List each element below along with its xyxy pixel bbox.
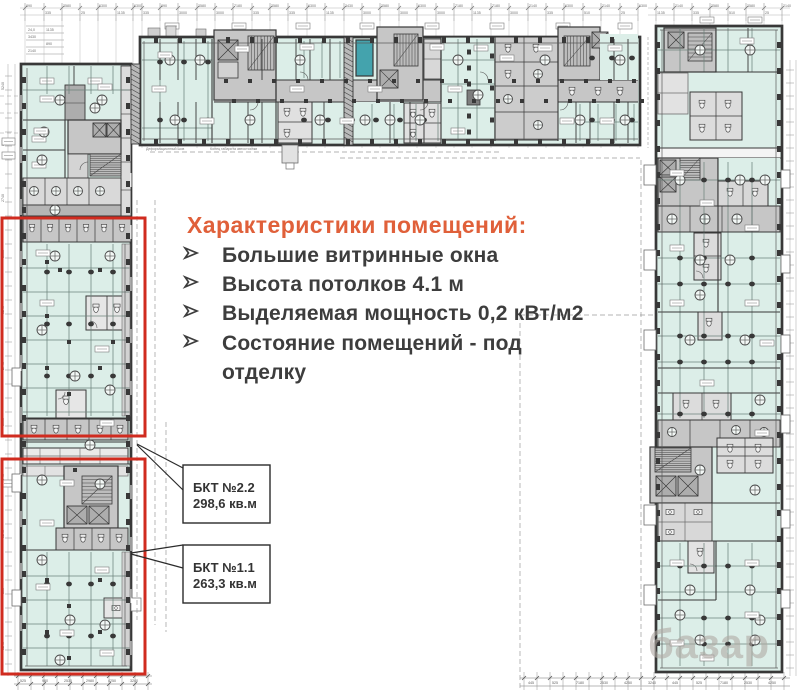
svg-text:3580: 3580 [711, 4, 719, 8]
svg-text:510: 510 [584, 11, 590, 15]
svg-text:3580: 3580 [63, 4, 71, 8]
svg-text:525: 525 [20, 679, 26, 683]
svg-text:445: 445 [672, 681, 678, 685]
svg-text:базар: базар [648, 620, 770, 667]
svg-text:4250: 4250 [108, 679, 116, 683]
svg-text:2530: 2530 [744, 681, 752, 685]
svg-text:2530: 2530 [64, 679, 72, 683]
svg-text:2140: 2140 [529, 4, 537, 8]
svg-text:3000: 3000 [437, 11, 445, 15]
svg-text:445: 445 [528, 681, 534, 685]
svg-text:Конец габарита автостоянки: Конец габарита автостоянки [210, 147, 257, 151]
svg-text:отделку: отделку [222, 361, 306, 384]
svg-text:1135: 1135 [326, 11, 334, 15]
svg-text:1135: 1135 [657, 11, 665, 15]
svg-text:1135: 1135 [473, 11, 481, 15]
svg-text:3000: 3000 [510, 11, 518, 15]
svg-text:7180: 7180 [234, 4, 242, 8]
svg-text:4250: 4250 [768, 681, 776, 685]
svg-text:3580: 3580 [198, 4, 206, 8]
svg-text:6300: 6300 [565, 4, 573, 8]
svg-text:298,6 кв.м: 298,6 кв.м [193, 496, 257, 511]
svg-text:25: 25 [81, 11, 85, 15]
svg-text:6300: 6300 [639, 4, 647, 8]
svg-text:2740: 2740 [1, 194, 5, 202]
svg-text:3000: 3000 [216, 11, 224, 15]
svg-text:525: 525 [696, 681, 702, 685]
svg-text:3000: 3000 [400, 11, 408, 15]
svg-text:5240: 5240 [1, 82, 5, 90]
svg-text:Высота потолков 4.1 м: Высота потолков 4.1 м [222, 273, 464, 296]
svg-text:3430: 3430 [345, 4, 353, 8]
svg-text:2140: 2140 [28, 49, 36, 53]
svg-text:3240: 3240 [130, 679, 138, 683]
svg-text:263,3 кв.м: 263,3 кв.м [193, 576, 257, 591]
svg-text:6300: 6300 [308, 4, 316, 8]
svg-text:525: 525 [552, 681, 558, 685]
svg-text:БКТ №2.2: БКТ №2.2 [193, 480, 255, 495]
svg-text:335: 335 [289, 11, 295, 15]
svg-text:БКТ №1.1: БКТ №1.1 [193, 560, 255, 575]
svg-text:6300: 6300 [99, 4, 107, 8]
svg-text:7180: 7180 [492, 4, 500, 8]
svg-text:510: 510 [729, 11, 735, 15]
svg-text:335: 335 [547, 11, 553, 15]
svg-text:7180: 7180 [720, 681, 728, 685]
svg-text:3000: 3000 [179, 11, 187, 15]
svg-text:3430: 3430 [28, 35, 36, 39]
svg-text:335: 335 [693, 11, 699, 15]
svg-text:Выделяемая мощность 0,2 кВт/м2: Выделяемая мощность 0,2 кВт/м2 [222, 302, 584, 325]
svg-text:980: 980 [42, 679, 48, 683]
svg-text:3580: 3580 [381, 4, 389, 8]
svg-text:Состояние помещений - под: Состояние помещений - под [222, 332, 522, 355]
svg-text:335: 335 [253, 11, 259, 15]
svg-text:3580: 3580 [747, 4, 755, 8]
svg-text:25: 25 [621, 11, 625, 15]
svg-text:335: 335 [45, 11, 51, 15]
svg-text:3000: 3000 [363, 11, 371, 15]
svg-text:7180: 7180 [455, 4, 463, 8]
svg-text:2980: 2980 [86, 679, 94, 683]
svg-text:2140: 2140 [675, 4, 683, 8]
svg-text:Большие витринные окна: Большие витринные окна [222, 244, 498, 267]
svg-text:2140: 2140 [602, 4, 610, 8]
svg-text:1135: 1135 [46, 28, 54, 32]
svg-text:890: 890 [46, 42, 52, 46]
svg-text:Деформационный шов: Деформационный шов [146, 147, 184, 151]
svg-text:Характеристики помещений:: Характеристики помещений: [187, 212, 527, 238]
svg-text:1135: 1135 [117, 11, 125, 15]
svg-text:6300: 6300 [418, 4, 426, 8]
svg-text:7180: 7180 [576, 681, 584, 685]
svg-text:335: 335 [143, 11, 149, 15]
svg-text:3240: 3240 [648, 681, 656, 685]
svg-text:25: 25 [765, 11, 769, 15]
svg-text:3580: 3580 [271, 4, 279, 8]
svg-text:4250: 4250 [624, 681, 632, 685]
svg-text:6300: 6300 [134, 4, 142, 8]
svg-text:24,0: 24,0 [28, 28, 35, 32]
svg-text:2140: 2140 [783, 4, 791, 8]
svg-text:2530: 2530 [600, 681, 608, 685]
